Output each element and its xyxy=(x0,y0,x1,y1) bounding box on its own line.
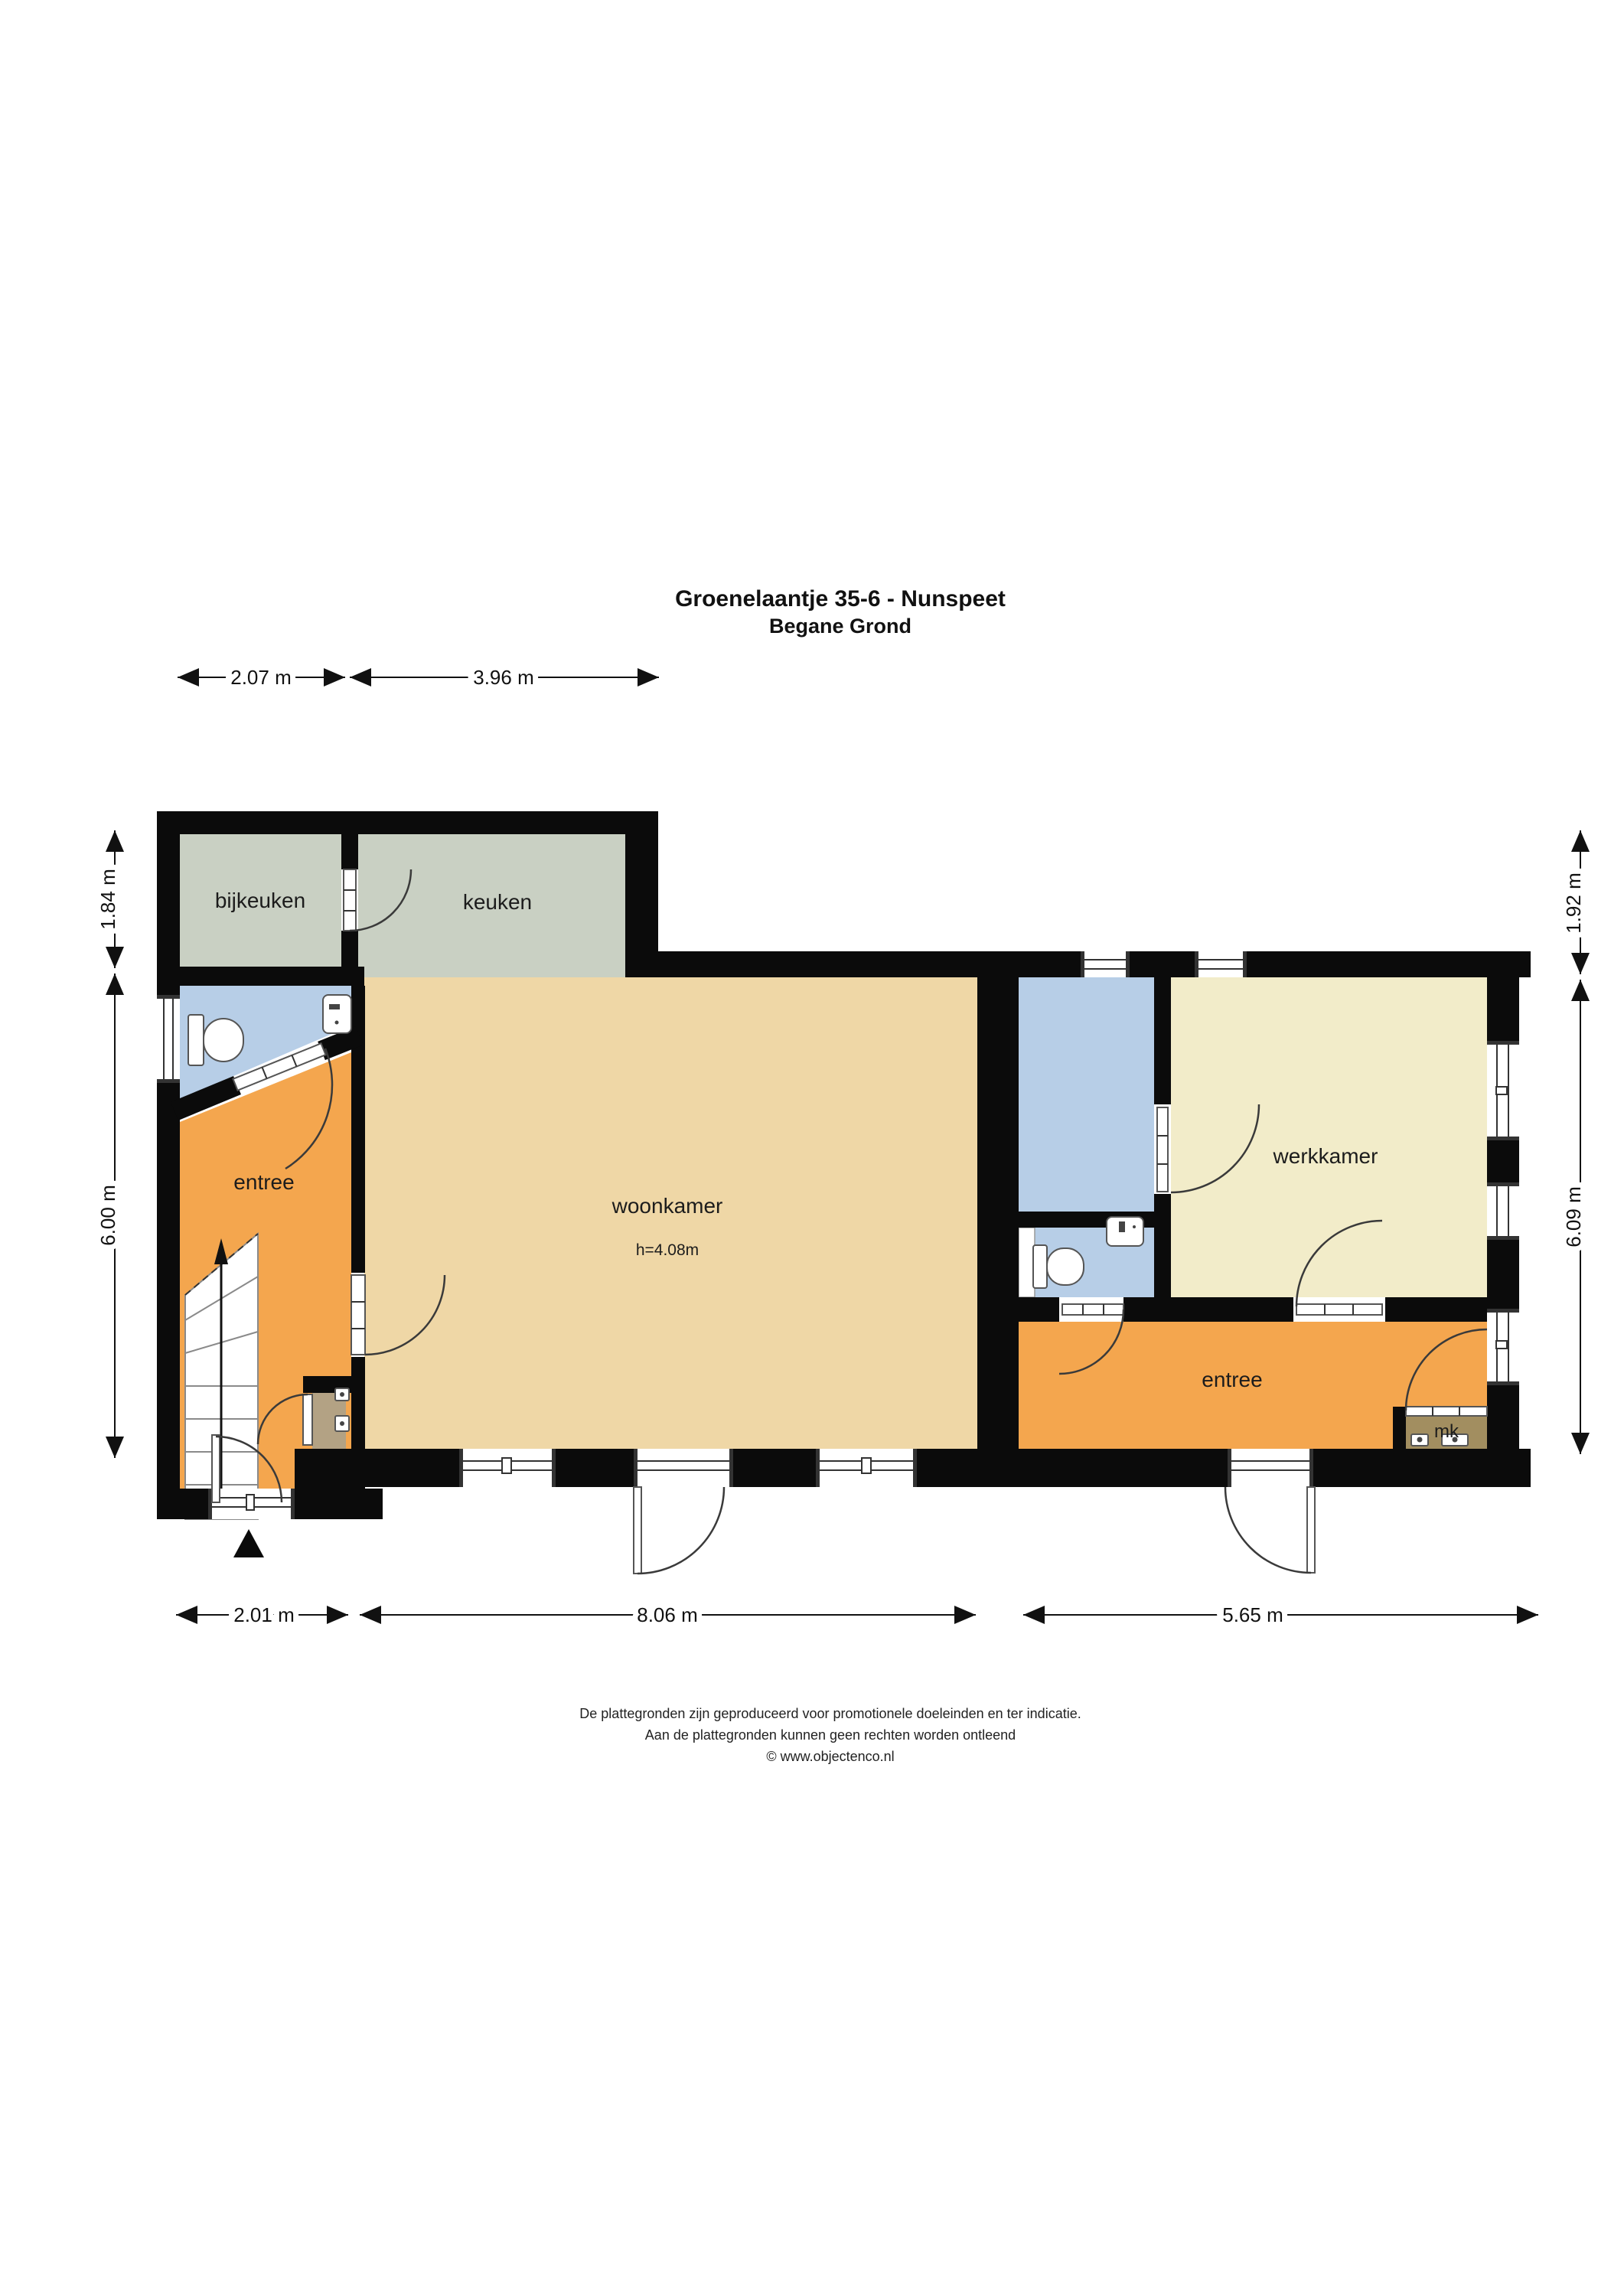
wall xyxy=(295,1489,383,1519)
wall xyxy=(341,931,358,968)
floorplan-canvas: Groenelaantje 35-6 - Nunspeet Begane Gro… xyxy=(0,0,1624,2296)
dim-label-right-2: 6.09 m xyxy=(1562,1186,1585,1247)
dim-label-bottom-3: 5.65 m xyxy=(1222,1603,1283,1626)
window xyxy=(459,1449,556,1487)
wall xyxy=(556,1449,634,1487)
wall xyxy=(1154,1212,1171,1322)
wall xyxy=(351,1449,459,1487)
window xyxy=(157,995,180,1083)
boiler-icon xyxy=(323,995,351,1033)
room-label-bijkeuken: bijkeuken xyxy=(215,889,305,912)
wall xyxy=(1123,1297,1154,1322)
wall xyxy=(157,1489,208,1519)
room-height-note: h=4.08m xyxy=(636,1241,699,1259)
window xyxy=(1487,1041,1519,1140)
dim-label-top-2: 3.96 m xyxy=(473,666,534,689)
wall xyxy=(625,951,1081,977)
window xyxy=(816,1449,917,1487)
wall xyxy=(157,967,364,986)
window xyxy=(1081,951,1130,977)
toilet-right-door-leaf xyxy=(1019,1228,1035,1297)
door-opening xyxy=(1228,1449,1313,1487)
wall xyxy=(1393,1407,1406,1449)
footer-line-1: De plattegronden zijn geproduceerd voor … xyxy=(579,1706,1081,1721)
toilet-icon xyxy=(188,1015,243,1065)
plan-subtitle: Begane Grond xyxy=(769,615,911,638)
wall xyxy=(1171,1297,1293,1322)
window xyxy=(1487,1309,1519,1385)
window xyxy=(1195,951,1247,977)
room-label-meterkast: mk xyxy=(1434,1421,1459,1442)
room-label-woonkamer: woonkamer xyxy=(611,1194,723,1218)
footer-line-3: © www.objectenco.nl xyxy=(766,1749,894,1764)
dim-label-left-1: 1.84 m xyxy=(96,869,119,930)
wall xyxy=(1130,951,1195,977)
room-werkkamer-floor xyxy=(1171,977,1487,1297)
toilet-icon xyxy=(1033,1245,1084,1288)
room-blue-floor xyxy=(1019,977,1154,1212)
wall xyxy=(1487,1240,1519,1309)
wall xyxy=(157,811,658,834)
room-label-werkkamer: werkkamer xyxy=(1273,1144,1378,1168)
room-label-entree-right: entree xyxy=(1202,1368,1262,1391)
window xyxy=(1487,1182,1519,1240)
wall-diagonal xyxy=(321,1035,360,1051)
door-opening xyxy=(634,1449,733,1487)
wall xyxy=(1487,951,1519,1041)
dim-label-bottom-2: 8.06 m xyxy=(637,1603,698,1626)
wall xyxy=(1154,1194,1171,1212)
room-label-entree-left: entree xyxy=(233,1170,294,1194)
wall xyxy=(1019,1297,1059,1322)
plan-title: Groenelaantje 35-6 - Nunspeet xyxy=(675,586,1006,612)
dim-label-top-1: 2.07 m xyxy=(230,666,292,689)
wall xyxy=(341,834,358,869)
dim-label-left-2: 6.00 m xyxy=(96,1185,119,1246)
wall xyxy=(1313,1449,1531,1487)
wall xyxy=(157,811,180,1519)
wall xyxy=(295,1449,351,1489)
wall xyxy=(1154,977,1171,1104)
wall xyxy=(917,1449,1228,1487)
dim-label-right-1: 1.92 m xyxy=(1562,872,1585,934)
wall xyxy=(1385,1297,1487,1322)
wall xyxy=(977,977,1019,1449)
footer-line-2: Aan de plattegronden kunnen geen rechten… xyxy=(645,1727,1016,1743)
wall xyxy=(1487,1140,1519,1182)
sink-icon xyxy=(1107,1217,1143,1246)
dim-label-bottom-1: 2.01 m xyxy=(233,1603,295,1626)
wall xyxy=(733,1449,816,1487)
room-label-keuken: keuken xyxy=(463,890,532,914)
